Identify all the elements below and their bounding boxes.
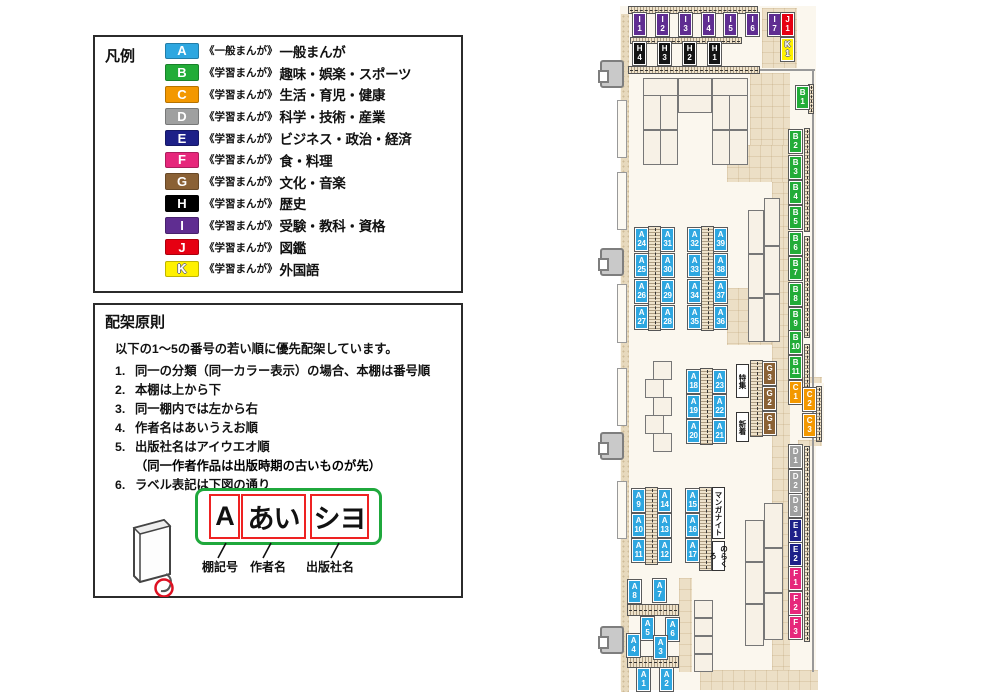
wall-line (758, 69, 815, 71)
shelf-label-F2: F2 (789, 592, 802, 615)
shelf-label-E2: E2 (789, 543, 802, 566)
shelf-label-A8: A8 (628, 580, 641, 603)
table-cell (764, 548, 783, 593)
shelf-label-B1: B1 (796, 86, 809, 109)
shelf-label-H2: H2 (683, 42, 696, 65)
door-icon (600, 432, 624, 460)
table-cell (645, 379, 664, 398)
table-cell (764, 503, 783, 548)
bookshelf-strip (628, 6, 758, 14)
shelf-label-D1: D1 (789, 445, 802, 468)
table-cell (694, 654, 713, 672)
bookshelf-strip (750, 360, 763, 437)
table-cell (764, 246, 780, 294)
shelf-label-A16: A16 (686, 514, 699, 537)
shelf-label-A2: A2 (660, 668, 673, 691)
bookshelf-strip (701, 226, 714, 331)
bookshelf-strip (804, 236, 810, 338)
shelf-label-A26: A26 (635, 280, 648, 303)
shelf-label-B2: B2 (789, 130, 802, 153)
bookshelf-strip (700, 368, 713, 445)
table-cell (729, 130, 748, 165)
door-icon (600, 626, 624, 654)
shelf-label-H3: H3 (658, 42, 671, 65)
shelf-label-K1: K1 (781, 38, 794, 61)
page: { "legend": { "title": "凡例", "items": [ … (0, 0, 1000, 700)
shelf-label-B7: B7 (789, 257, 802, 280)
shelf-label-A9: A9 (632, 489, 645, 512)
corridor (679, 578, 692, 672)
table-cell (653, 361, 672, 380)
table-cell (643, 95, 661, 130)
shelf-label-D3: D3 (789, 494, 802, 517)
wall-shelf (617, 481, 627, 539)
bookshelf-strip (627, 604, 679, 616)
note-label-のらくろ: のらくろ (712, 541, 725, 571)
door-icon (600, 60, 624, 88)
table-cell (748, 298, 764, 342)
note-label-新着: 新着 (736, 412, 749, 442)
shelf-label-A38: A38 (714, 254, 727, 277)
shelf-label-A20: A20 (687, 420, 700, 443)
bookshelf-strip (627, 656, 679, 668)
table-cell (643, 130, 661, 165)
wall-shelf (617, 368, 627, 426)
shelf-label-H1: H1 (708, 42, 721, 65)
shelf-label-H4: H4 (633, 42, 646, 65)
shelf-label-I5: I5 (724, 13, 737, 36)
shelf-label-B8: B8 (789, 283, 802, 306)
shelf-label-A28: A28 (661, 306, 674, 329)
bookshelf-strip (804, 128, 810, 232)
shelf-label-I3: I3 (679, 13, 692, 36)
note-label-特集: 特集 (736, 364, 749, 398)
shelf-label-G3: G3 (763, 362, 776, 385)
shelf-label-C2: C2 (803, 388, 816, 411)
shelf-label-A12: A12 (658, 539, 671, 562)
shelf-label-B9: B9 (789, 308, 802, 331)
shelf-label-A17: A17 (686, 539, 699, 562)
shelf-label-C3: C3 (803, 414, 816, 437)
table-cell (748, 254, 764, 298)
table-cell (712, 95, 730, 130)
shelf-label-A29: A29 (661, 280, 674, 303)
table-cell (678, 95, 712, 113)
table-cell (748, 210, 764, 254)
shelf-label-F1: F1 (789, 567, 802, 590)
shelf-label-A30: A30 (661, 254, 674, 277)
shelf-label-G1: G1 (763, 412, 776, 435)
shelf-label-A24: A24 (635, 228, 648, 251)
table-cell (660, 130, 678, 165)
shelf-label-A21: A21 (713, 420, 726, 443)
table-cell (694, 636, 713, 654)
shelf-label-A3: A3 (654, 636, 667, 659)
shelf-label-A1: A1 (637, 668, 650, 691)
shelf-label-G2: G2 (763, 387, 776, 410)
floor-map: I1I2I3I4I5I6I7J1K1H4H3H2H1B1B2B3B4B5B6B7… (0, 0, 1000, 700)
shelf-label-D2: D2 (789, 470, 802, 493)
bookshelf-strip (804, 446, 810, 642)
shelf-label-A7: A7 (653, 579, 666, 602)
note-label-マンガナイト: マンガナイト (712, 487, 725, 539)
shelf-label-A34: A34 (688, 280, 701, 303)
shelf-label-A25: A25 (635, 254, 648, 277)
shelf-label-A11: A11 (632, 539, 645, 562)
shelf-label-A23: A23 (713, 370, 726, 393)
bookshelf-strip (628, 66, 760, 74)
shelf-label-A22: A22 (713, 395, 726, 418)
shelf-label-A15: A15 (686, 489, 699, 512)
shelf-label-A18: A18 (687, 370, 700, 393)
table-cell (764, 593, 783, 640)
wall-shelf (617, 284, 627, 343)
shelf-label-A19: A19 (687, 395, 700, 418)
shelf-label-B10: B10 (789, 331, 802, 354)
shelf-label-A13: A13 (658, 514, 671, 537)
shelf-label-A39: A39 (714, 228, 727, 251)
table-cell (764, 294, 780, 342)
shelf-label-A5: A5 (641, 617, 654, 640)
corridor (700, 670, 818, 690)
shelf-label-A10: A10 (632, 514, 645, 537)
bookshelf-strip (645, 487, 658, 565)
corridor (750, 73, 790, 147)
shelf-label-I4: I4 (702, 13, 715, 36)
table-cell (729, 95, 748, 130)
shelf-label-I2: I2 (656, 13, 669, 36)
table-cell (712, 78, 748, 96)
table-cell (653, 397, 672, 416)
table-cell (694, 618, 713, 636)
door-icon (600, 248, 624, 276)
shelf-label-A35: A35 (688, 306, 701, 329)
shelf-label-B3: B3 (789, 156, 802, 179)
shelf-label-B11: B11 (789, 356, 802, 379)
shelf-label-J1: J1 (781, 13, 794, 36)
shelf-label-A6: A6 (666, 618, 679, 641)
shelf-label-A32: A32 (688, 228, 701, 251)
shelf-label-B4: B4 (789, 181, 802, 204)
table-cell (660, 95, 678, 130)
shelf-label-A27: A27 (635, 306, 648, 329)
table-cell (645, 415, 664, 434)
table-cell (678, 78, 712, 96)
table-cell (653, 433, 672, 452)
wall-shelf (617, 100, 627, 158)
shelf-label-B6: B6 (789, 232, 802, 255)
wall-shelf (617, 172, 627, 230)
shelf-label-A37: A37 (714, 280, 727, 303)
shelf-label-I7: I7 (768, 13, 781, 36)
table-cell (745, 520, 764, 562)
wall-line (812, 71, 814, 672)
shelf-label-I6: I6 (746, 13, 759, 36)
table-cell (745, 562, 764, 604)
shelf-label-A4: A4 (627, 634, 640, 657)
shelf-label-B5: B5 (789, 206, 802, 229)
shelf-label-A14: A14 (658, 489, 671, 512)
shelf-label-I1: I1 (633, 13, 646, 36)
bookshelf-strip (816, 386, 822, 442)
table-cell (764, 198, 780, 246)
table-cell (745, 604, 764, 646)
table-cell (694, 600, 713, 618)
shelf-label-F3: F3 (789, 616, 802, 639)
shelf-label-A33: A33 (688, 254, 701, 277)
shelf-label-C1: C1 (789, 381, 802, 404)
shelf-label-A36: A36 (714, 306, 727, 329)
bookshelf-strip (648, 226, 661, 331)
table-cell (712, 130, 730, 165)
shelf-label-A31: A31 (661, 228, 674, 251)
table-cell (643, 78, 678, 96)
shelf-label-E1: E1 (789, 519, 802, 542)
